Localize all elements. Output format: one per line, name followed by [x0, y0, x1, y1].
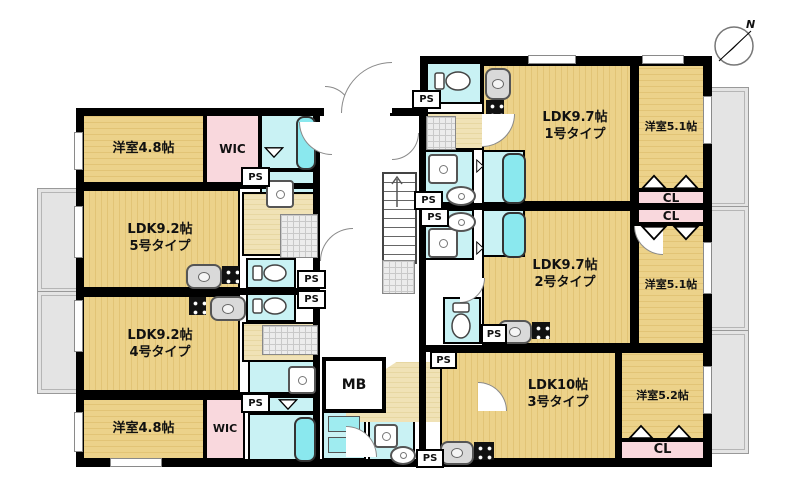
window [110, 458, 162, 467]
closet-door-triangle [640, 174, 668, 190]
sink-bowl [222, 304, 234, 314]
window [642, 55, 684, 64]
balcony-rail [711, 91, 745, 204]
ldk-unit1-type: 1号タイプ [544, 127, 605, 142]
bathroom-door-triangle [278, 398, 298, 411]
stairs-up-arrow-icon [388, 175, 406, 209]
entrance-door-right-arc [341, 62, 392, 113]
basin-bowl [276, 190, 285, 199]
ldk-unit4-type: 4号タイプ [129, 345, 190, 360]
kitchen-sink-unit3 [440, 441, 474, 465]
ps-shaft-wc5: PS [297, 270, 326, 289]
ps-label: PS [436, 355, 451, 366]
genkan-unit1-unit2 [426, 116, 456, 150]
bathtub-unit1 [502, 153, 526, 204]
kitchen-sink-unit4 [210, 296, 246, 321]
genkan-unit5 [280, 214, 318, 258]
ps-shaft-unit4: PS [241, 393, 270, 413]
washbasin-unit2 [428, 228, 458, 258]
ps-shaft-wc4: PS [297, 290, 326, 309]
window [703, 242, 712, 294]
ldk-unit1-label: LDK9.7帖 1号タイプ [505, 110, 645, 144]
ldk-unit3-label: LDK10帖 3号タイプ [488, 378, 628, 412]
window [74, 132, 83, 170]
room-closet-unit2: CL [637, 208, 705, 224]
ps-label: PS [304, 294, 319, 305]
stair-landing [382, 260, 415, 294]
washbasin-unit5 [266, 180, 294, 208]
bedroom-unit3-label: 洋室5.2帖 [636, 389, 689, 403]
kitchen-sink-unit1 [485, 68, 511, 100]
ps-shaft-kitchen3: PS [416, 449, 444, 468]
room-bedroom-unit5: 洋室4.8帖 [82, 114, 205, 184]
bedroom-unit2-label: 洋室5.1帖 [645, 278, 698, 292]
window [703, 366, 712, 414]
kitchen-stove-unit5 [222, 266, 239, 284]
window [74, 206, 83, 258]
ldk-unit2-size: LDK9.7帖 [532, 258, 597, 273]
sink-bowl [451, 448, 463, 458]
bathroom-door-triangle [470, 241, 490, 255]
sink-bowl [509, 327, 521, 337]
wic-unit4-label: WIC [213, 422, 237, 436]
sink-bowl [198, 272, 210, 282]
ps-label: PS [304, 274, 319, 285]
closet-door-triangle [666, 424, 692, 440]
ps-label: PS [427, 212, 442, 223]
ps-label: PS [248, 398, 263, 409]
closet-door-triangle [672, 174, 700, 190]
sink-oval-unit1 [446, 186, 476, 206]
ldk-unit3-size: LDK10帖 [528, 378, 588, 393]
bathroom-door-triangle [264, 146, 284, 159]
basin-bowl [439, 239, 448, 248]
shower-unit3 [374, 424, 398, 448]
bathtub-unit2 [502, 212, 526, 258]
basin-bowl [439, 165, 448, 174]
closet-unit2-label: CL [663, 209, 679, 224]
bedroom-unit5-label: 洋室4.8帖 [112, 141, 174, 157]
balcony-right-2 [707, 206, 749, 332]
ldk-unit2-label: LDK9.7帖 2号タイプ [495, 258, 635, 292]
shower-drain [382, 432, 391, 441]
washbasin-center [390, 446, 416, 465]
wall-corridor-right [419, 108, 426, 467]
wall-u2-u3-divide [419, 345, 712, 352]
balcony-rail [41, 192, 77, 289]
basin-bowl [298, 376, 307, 385]
ldk-unit5-size: LDK9.2帖 [127, 222, 192, 237]
floor-plan: 洋室4.8帖 WIC LDK9.2帖 5号タイプ LDK9.2帖 4号タイプ 洋… [0, 0, 800, 491]
closet-door-triangle [628, 424, 654, 440]
closet-door-triangle [672, 225, 700, 241]
basin-bowl [458, 193, 465, 200]
ps-label: PS [487, 329, 502, 340]
kitchen-sink-unit5 [186, 264, 222, 289]
ps-shaft-unit5: PS [241, 167, 270, 187]
compass-north-label: N [746, 18, 755, 31]
meter-box: MB [322, 357, 386, 413]
ps-shaft-unit3: PS [430, 351, 457, 369]
bedroom-unit1-label: 洋室5.1帖 [645, 120, 698, 134]
room-closet-unit3: CL [620, 440, 705, 460]
window [74, 300, 83, 352]
balcony-rail [41, 295, 77, 390]
kitchen-stove-unit3 [474, 442, 494, 460]
room-wic-unit4: WIC [205, 398, 245, 460]
washbasin-unit1 [428, 154, 458, 184]
balcony-rail [711, 334, 745, 450]
kitchen-stove-unit2 [532, 322, 550, 339]
ldk-unit5-label: LDK9.2帖 5号タイプ [90, 222, 230, 256]
closet-door-triangle [640, 225, 668, 241]
ps-label: PS [419, 94, 434, 105]
wall-u5-u4-divide [76, 288, 320, 295]
balcony-right-3 [707, 330, 749, 454]
ldk-unit4-size: LDK9.2帖 [127, 328, 192, 343]
toilet-icon-unit5 [252, 263, 288, 283]
washbasin-unit4 [288, 366, 316, 394]
room-bedroom-unit4: 洋室4.8帖 [82, 398, 205, 460]
ps-shaft-ldk2: PS [481, 324, 507, 344]
balcony-right-1 [707, 87, 749, 208]
ps-label: PS [423, 453, 438, 464]
balcony-rail [711, 210, 745, 328]
wall-top-left [76, 108, 326, 116]
genkan-unit4 [262, 325, 318, 355]
ldk-unit5-type: 5号タイプ [129, 239, 190, 254]
window [703, 96, 712, 144]
toilet-icon-unit1 [434, 70, 472, 92]
bathroom-door-triangle [470, 159, 490, 173]
bedroom-unit4-label: 洋室4.8帖 [112, 421, 174, 437]
sink-oval-unit2 [446, 212, 476, 232]
ldk-unit4-label: LDK9.2帖 4号タイプ [90, 328, 230, 362]
toilet-icon-unit3 [450, 302, 472, 340]
ldk-unit3-type: 3号タイプ [527, 395, 588, 410]
ps-shaft-core-2: PS [420, 208, 449, 227]
meter-box-label: MB [342, 377, 367, 393]
kitchen-stove-unit4 [189, 297, 206, 315]
basin-bowl [458, 219, 465, 226]
ldk-unit1-size: LDK9.7帖 [542, 110, 607, 125]
ldk-unit2-type: 2号タイプ [534, 275, 595, 290]
compass: N [710, 20, 762, 72]
basin-bowl [400, 452, 407, 459]
bathtub-unit4 [294, 417, 316, 462]
window [74, 412, 83, 452]
sink-bowl [492, 79, 504, 89]
wic-unit5-label: WIC [219, 142, 246, 157]
toilet-icon-unit4 [252, 296, 288, 316]
ps-shaft-top: PS [412, 90, 441, 109]
ps-label: PS [421, 195, 436, 206]
room-bedroom-unit1: 洋室5.1帖 [637, 64, 705, 190]
ps-label: PS [248, 172, 263, 183]
window [528, 55, 576, 64]
closet-unit3-label: CL [654, 442, 672, 458]
